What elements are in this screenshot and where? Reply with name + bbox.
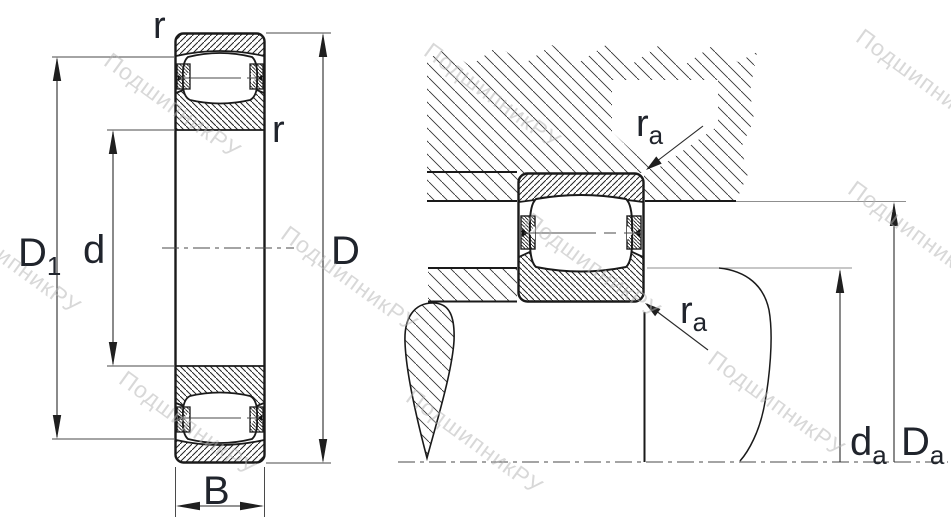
cage-pocket <box>250 407 263 432</box>
bearing-technical-drawing: ra ra da Da <box>0 0 951 532</box>
right-view-mounted-bearing: ra ra da Da <box>398 45 948 470</box>
label-housing-abutment-Da: Da <box>901 420 945 470</box>
dimension-line-Da <box>890 202 898 462</box>
label-chamfer-r-top: r <box>153 5 166 47</box>
watermark-text: ПодшипникРУ <box>704 345 850 461</box>
shaft-shoulder-section-hatch <box>428 268 517 302</box>
label-shaft-abutment-da: da <box>850 420 887 470</box>
watermark-text: ПодшипникРУ <box>852 23 951 139</box>
label-fillet-ra-shaft: ra <box>680 290 708 337</box>
watermark-text: ПодшипникРУ <box>844 175 951 291</box>
cage-pocket <box>250 64 263 89</box>
cage-pocket <box>177 64 190 89</box>
watermark-layer: ПодшипникРУ ПодшипникРУ ПодшипникРУ Подш… <box>0 23 951 499</box>
label-chamfer-r-side: r <box>272 109 285 151</box>
label-bore-diameter-d: d <box>83 228 105 272</box>
label-width-B: B <box>203 469 230 513</box>
